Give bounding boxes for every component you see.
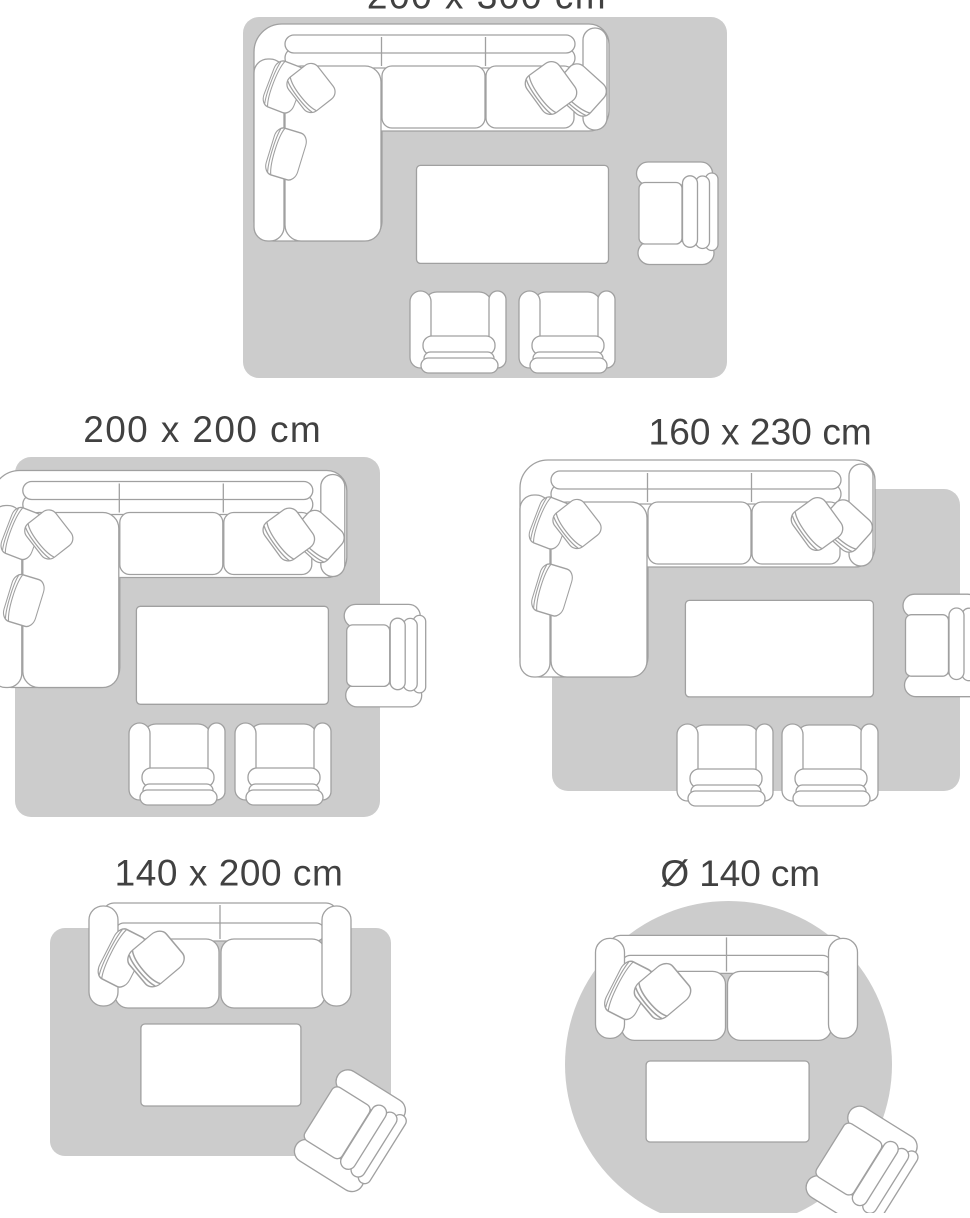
svg-text:200 x 200 cm: 200 x 200 cm [83, 409, 322, 450]
svg-text:160 x 230 cm: 160 x 230 cm [649, 412, 872, 453]
svg-text:200 x 300 cm: 200 x 300 cm [367, 0, 607, 17]
svg-text:140 x 200 cm: 140 x 200 cm [115, 852, 344, 893]
svg-text:Ø 140 cm: Ø 140 cm [660, 853, 820, 894]
